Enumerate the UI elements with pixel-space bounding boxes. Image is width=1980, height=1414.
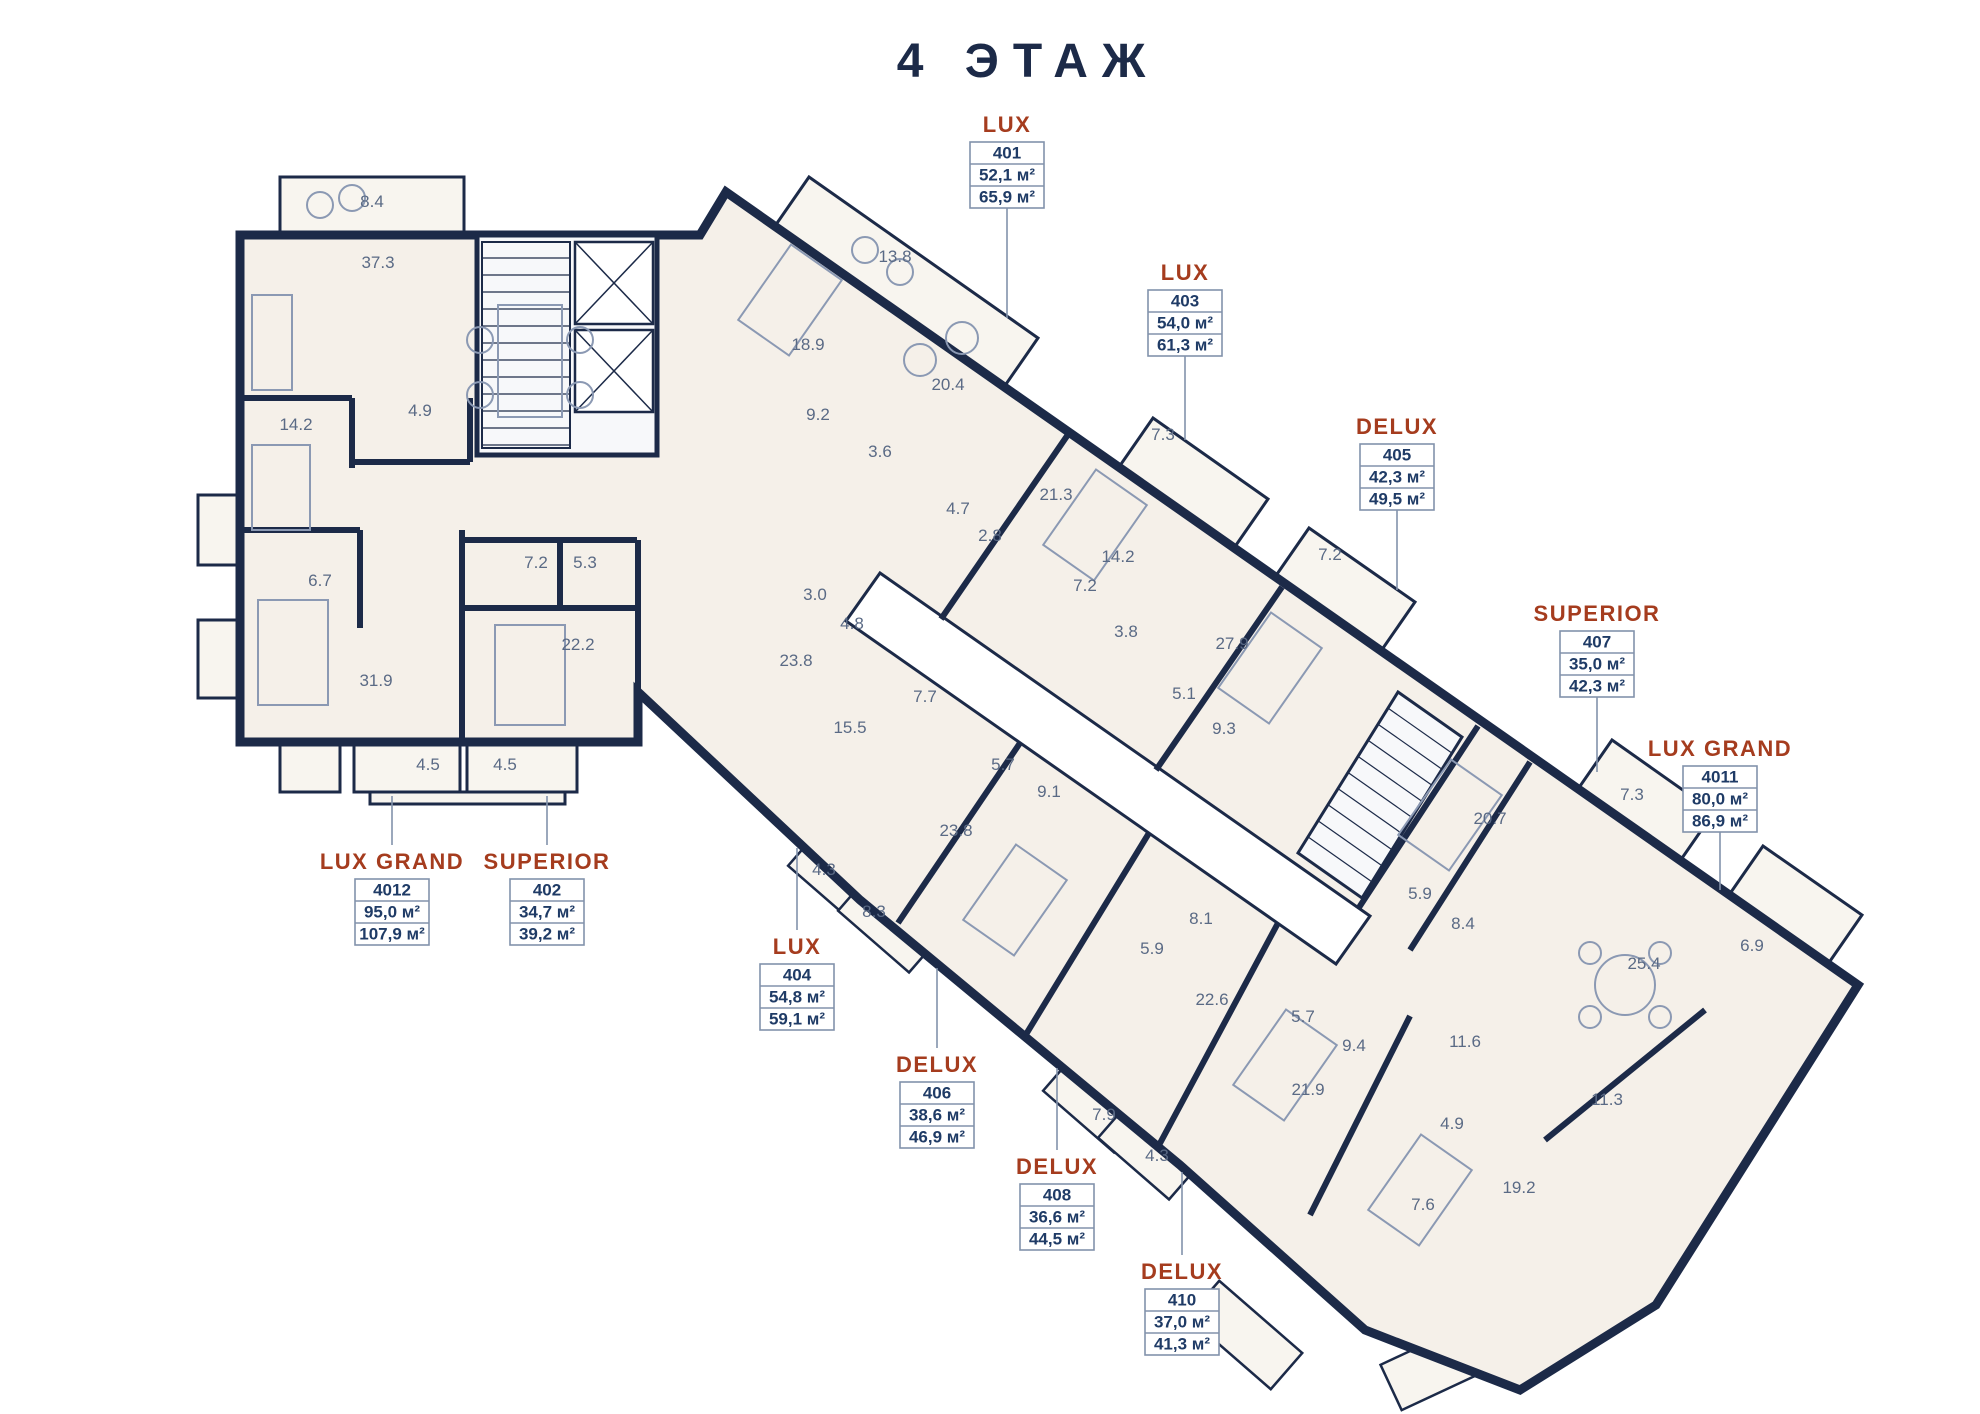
unit-number: 406 — [923, 1084, 951, 1103]
unit-number: 410 — [1168, 1291, 1196, 1310]
unit-area-living: 54,8 м² — [769, 988, 825, 1007]
room-area-label: 20.7 — [1473, 809, 1506, 828]
room-area-label: 14.2 — [279, 415, 312, 434]
unit-number: 404 — [783, 966, 812, 985]
floor-plan-drawing: 8.437.314.24.96.77.25.322.231.94.54.513.… — [0, 0, 1980, 1414]
unit-area-total: 42,3 м² — [1569, 677, 1625, 696]
room-area-label: 9.3 — [1212, 719, 1236, 738]
unit-type-name: LUX — [1161, 260, 1210, 285]
balcony-bay — [280, 742, 340, 792]
unit-area-living: 54,0 м² — [1157, 314, 1213, 333]
room-area-label: 18.9 — [791, 335, 824, 354]
room-area-label: 22.6 — [1195, 990, 1228, 1009]
room-area-label: 2.8 — [978, 526, 1002, 545]
room-area-label: 11.3 — [1591, 1090, 1623, 1109]
room-area-label: 9.2 — [806, 405, 830, 424]
unit-area-total: 61,3 м² — [1157, 336, 1213, 355]
floor-plan-page: 4 ЭТАЖ 8.437.314.24.96.77.25.322.231.94.… — [0, 0, 1980, 1414]
room-area-label: 25.4 — [1627, 954, 1660, 973]
room-area-label: 4.9 — [408, 401, 432, 420]
unit-number: 4012 — [373, 881, 411, 900]
room-area-label: 4.8 — [840, 614, 864, 633]
unit-area-living: 52,1 м² — [979, 166, 1035, 185]
room-area-label: 3.8 — [1114, 622, 1138, 641]
unit-area-living: 42,3 м² — [1369, 468, 1425, 487]
room-area-label: 21.9 — [1291, 1080, 1324, 1099]
unit-type-name: LUX — [773, 934, 822, 959]
room-area-label: 19.2 — [1502, 1178, 1535, 1197]
room-area-label: 6.9 — [1740, 936, 1764, 955]
unit-label-402: SUPERIOR40234,7 м²39,2 м² — [484, 796, 611, 945]
room-area-label: 23.8 — [939, 821, 972, 840]
unit-area-living: 95,0 м² — [364, 903, 420, 922]
unit-type-name: SUPERIOR — [484, 849, 611, 874]
room-area-label: 5.9 — [1408, 884, 1432, 903]
unit-area-living: 80,0 м² — [1692, 790, 1748, 809]
unit-area-total: 86,9 м² — [1692, 812, 1748, 831]
room-area-label: 5.9 — [1140, 939, 1164, 958]
room-area-label: 8.1 — [1189, 909, 1213, 928]
unit-number: 405 — [1383, 446, 1411, 465]
room-area-label: 7.2 — [524, 553, 548, 572]
unit-area-total: 39,2 м² — [519, 925, 575, 944]
unit-area-living: 35,0 м² — [1569, 655, 1625, 674]
unit-type-name: LUX GRAND — [320, 849, 464, 874]
room-area-label: 20.4 — [931, 375, 964, 394]
room-area-label: 21.3 — [1039, 485, 1072, 504]
unit-type-name: DELUX — [1016, 1154, 1098, 1179]
room-area-label: 7.6 — [1411, 1195, 1435, 1214]
room-area-label: 4.9 — [1440, 1114, 1464, 1133]
room-area-label: 7.9 — [1092, 1105, 1116, 1124]
unit-number: 403 — [1171, 292, 1199, 311]
unit-label-405: DELUX40542,3 м²49,5 м² — [1356, 414, 1438, 590]
unit-area-total: 41,3 м² — [1154, 1335, 1210, 1354]
room-area-label: 7.3 — [1151, 425, 1175, 444]
unit-area-total: 49,5 м² — [1369, 490, 1425, 509]
unit-label-407: SUPERIOR40735,0 м²42,3 м² — [1534, 601, 1661, 772]
balcony-bay — [370, 792, 565, 804]
unit-area-total: 65,9 м² — [979, 188, 1035, 207]
room-area-label: 4.5 — [416, 755, 440, 774]
balcony-bay — [354, 742, 460, 792]
room-area-label: 23.8 — [779, 651, 812, 670]
unit-number: 4011 — [1702, 768, 1739, 787]
room-area-label: 5.3 — [573, 553, 597, 572]
unit-number: 401 — [993, 144, 1021, 163]
unit-area-total: 46,9 м² — [909, 1128, 965, 1147]
unit-area-total: 59,1 м² — [769, 1010, 825, 1029]
unit-type-name: SUPERIOR — [1534, 601, 1661, 626]
room-area-label: 9.4 — [1342, 1036, 1366, 1055]
room-area-label: 4.5 — [493, 755, 517, 774]
room-area-label: 4.3 — [1145, 1146, 1169, 1165]
unit-area-living: 38,6 м² — [909, 1106, 965, 1125]
room-area-label: 5.7 — [991, 755, 1015, 774]
room-area-label: 6.7 — [308, 571, 332, 590]
room-area-label: 31.9 — [359, 671, 392, 690]
room-area-label: 13.8 — [878, 247, 911, 266]
unit-area-total: 107,9 м² — [359, 925, 425, 944]
room-area-label: 4.3 — [812, 860, 836, 879]
unit-label-406: DELUX40638,6 м²46,9 м² — [896, 968, 978, 1148]
unit-area-living: 36,6 м² — [1029, 1208, 1085, 1227]
unit-area-living: 37,0 м² — [1154, 1313, 1210, 1332]
balcony-bay — [198, 495, 240, 565]
room-area-label: 22.2 — [561, 635, 594, 654]
room-area-label: 8.4 — [1451, 914, 1475, 933]
room-area-label: 7.2 — [1073, 576, 1097, 595]
unit-label-410: DELUX41037,0 м²41,3 м² — [1141, 1172, 1223, 1355]
room-area-label: 37.3 — [361, 253, 394, 272]
unit-label-403: LUX40354,0 м²61,3 м² — [1148, 260, 1222, 440]
unit-type-name: LUX GRAND — [1648, 736, 1792, 761]
room-area-label: 27.9 — [1215, 634, 1248, 653]
room-area-label: 3.0 — [803, 585, 827, 604]
balcony-bay — [198, 620, 240, 698]
room-area-label: 8.3 — [862, 902, 886, 921]
unit-number: 408 — [1043, 1186, 1071, 1205]
unit-label-401: LUX40152,1 м²65,9 м² — [970, 112, 1044, 318]
room-area-label: 3.6 — [868, 442, 892, 461]
unit-type-name: LUX — [983, 112, 1032, 137]
unit-area-living: 34,7 м² — [519, 903, 575, 922]
unit-area-total: 44,5 м² — [1029, 1230, 1085, 1249]
room-area-label: 7.2 — [1318, 545, 1342, 564]
room-area-label: 7.7 — [913, 687, 937, 706]
room-area-label: 5.7 — [1291, 1007, 1315, 1026]
unit-label-4012: LUX GRAND401295,0 м²107,9 м² — [320, 796, 464, 945]
room-area-label: 14.2 — [1101, 547, 1134, 566]
room-area-label: 8.4 — [360, 192, 384, 211]
unit-type-name: DELUX — [896, 1052, 978, 1077]
room-area-label: 15.5 — [833, 718, 866, 737]
room-area-label: 4.7 — [946, 499, 970, 518]
room-area-label: 11.6 — [1449, 1032, 1481, 1051]
room-area-label: 9.1 — [1037, 782, 1061, 801]
unit-type-name: DELUX — [1141, 1259, 1223, 1284]
room-area-label: 5.1 — [1172, 684, 1196, 703]
room-area-label: 7.3 — [1620, 785, 1644, 804]
balcony-bay — [467, 742, 577, 792]
unit-number: 402 — [533, 881, 561, 900]
unit-number: 407 — [1583, 633, 1611, 652]
unit-type-name: DELUX — [1356, 414, 1438, 439]
